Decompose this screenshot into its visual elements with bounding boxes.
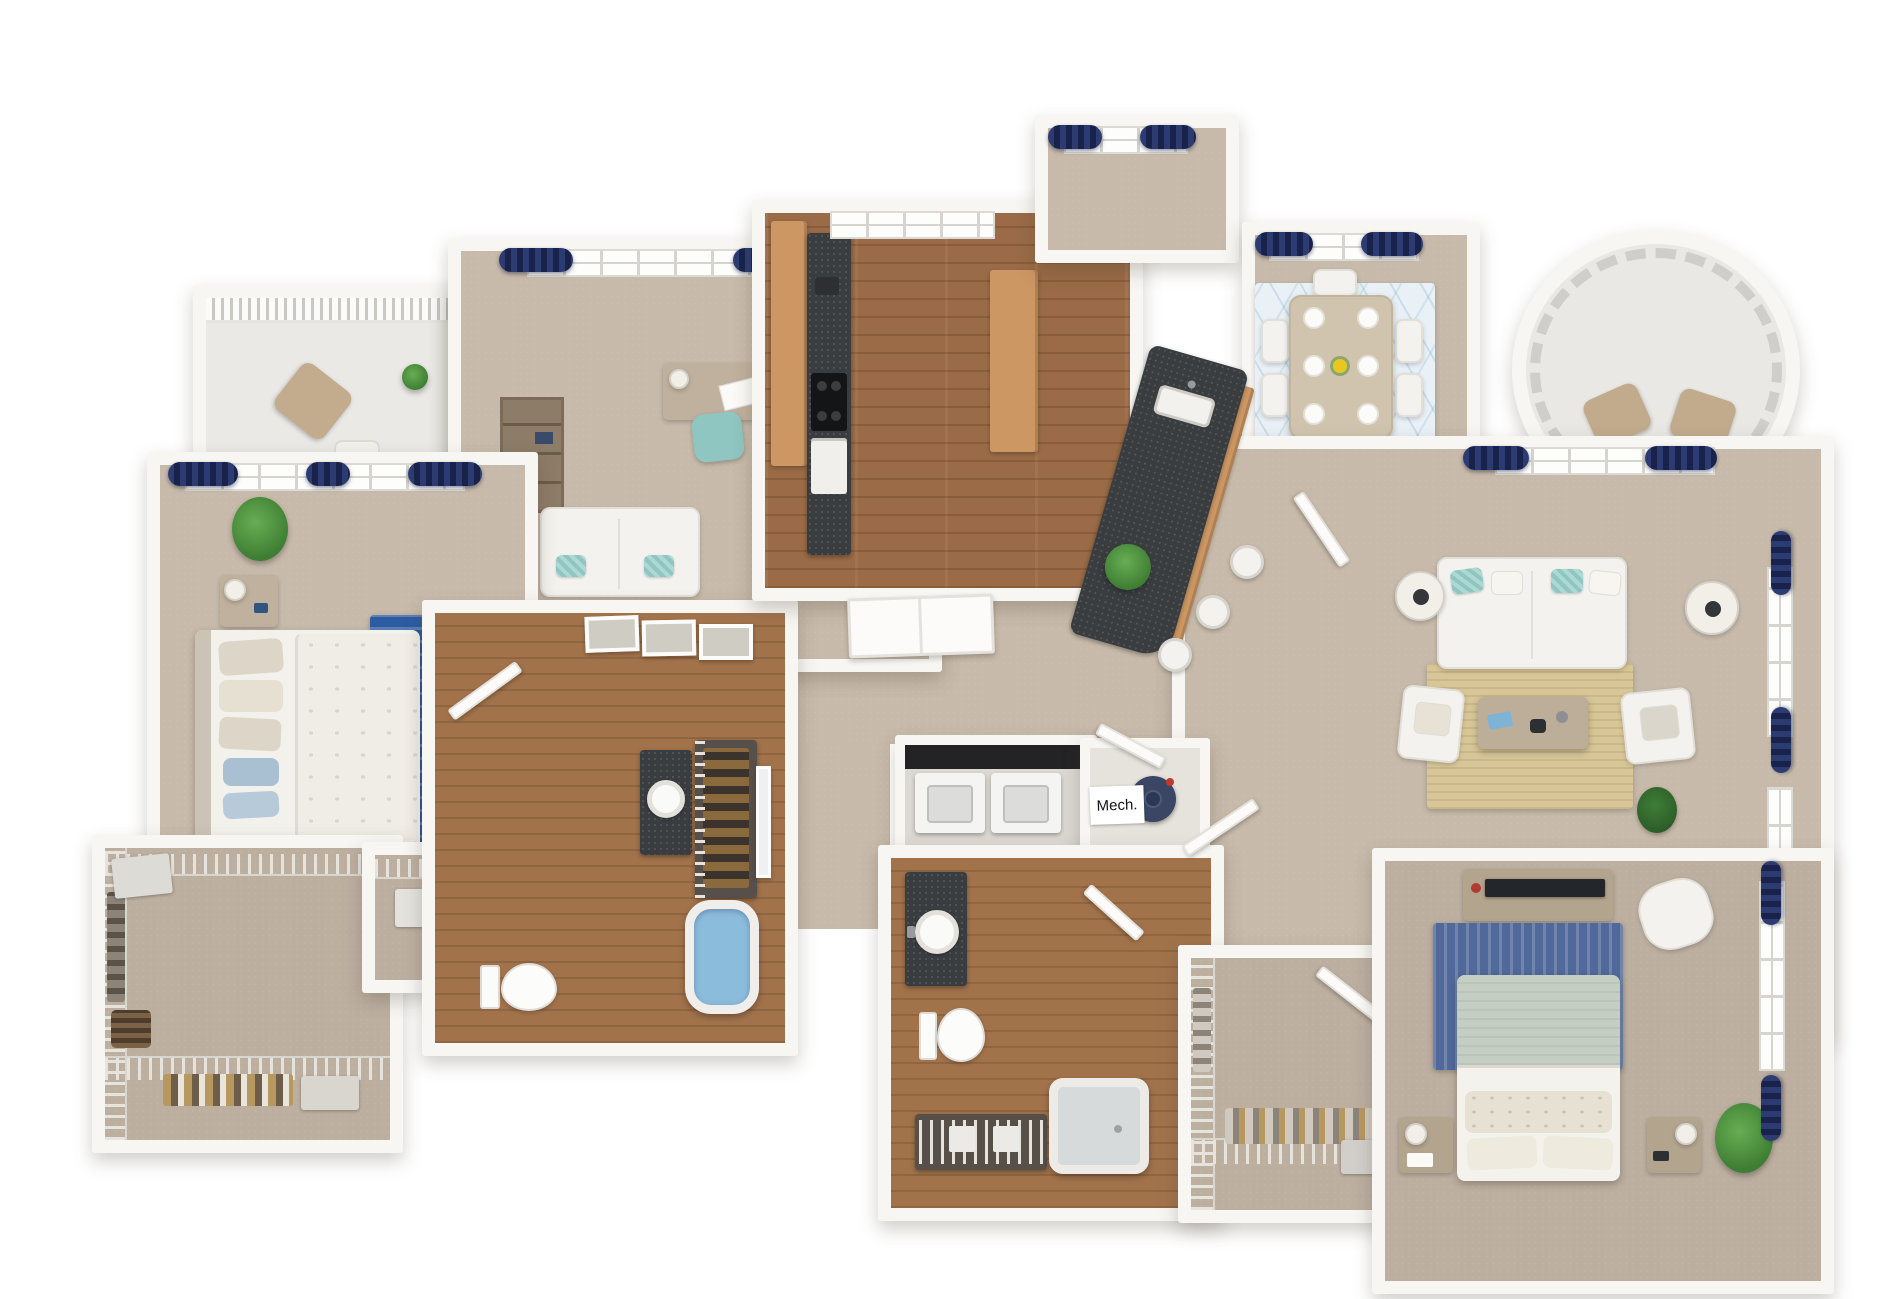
table-lamp bbox=[224, 579, 246, 601]
patio-chair bbox=[271, 359, 356, 443]
books bbox=[535, 432, 553, 444]
second-bathroom bbox=[878, 845, 1224, 1221]
curtains bbox=[499, 248, 573, 272]
valve bbox=[1166, 778, 1174, 786]
pillow bbox=[222, 791, 279, 820]
towel bbox=[1407, 1153, 1433, 1167]
phone bbox=[1653, 1151, 1669, 1161]
place-setting bbox=[1357, 307, 1379, 329]
potted-plant bbox=[1099, 538, 1156, 595]
hanging-clothes bbox=[1225, 1108, 1373, 1144]
hanging-clothes bbox=[163, 1074, 293, 1106]
picture-frame bbox=[699, 624, 753, 660]
balcony-railing bbox=[206, 298, 471, 323]
dining-chair bbox=[1313, 269, 1357, 297]
potted-plant bbox=[1637, 787, 1677, 833]
throw-pillow bbox=[556, 555, 586, 577]
coffee-table bbox=[1478, 697, 1588, 749]
vanity-sink bbox=[915, 910, 959, 954]
curtains bbox=[1048, 125, 1102, 149]
loveseat bbox=[540, 507, 700, 597]
desk-lamp bbox=[669, 369, 689, 389]
storage-box bbox=[301, 1076, 359, 1110]
toilet-tank bbox=[480, 965, 500, 1009]
dining-chair bbox=[1261, 319, 1289, 363]
storage-box bbox=[111, 853, 173, 899]
side-table-lamp bbox=[1685, 581, 1739, 635]
faucet bbox=[1187, 380, 1197, 390]
decor-item bbox=[1471, 883, 1481, 893]
curtains bbox=[1761, 1075, 1781, 1141]
place-setting bbox=[1357, 403, 1379, 425]
seat-divider bbox=[1531, 571, 1533, 659]
blanket bbox=[1457, 975, 1620, 1065]
curtains bbox=[1771, 531, 1791, 595]
picture-frame bbox=[584, 615, 639, 653]
vanity bbox=[640, 750, 692, 855]
wire-shelving bbox=[695, 740, 705, 898]
nightstand bbox=[220, 575, 278, 627]
hall-window-door bbox=[756, 766, 771, 878]
throw-pillow bbox=[1639, 704, 1680, 742]
throw-pillow bbox=[1413, 701, 1452, 737]
armchair bbox=[1631, 871, 1720, 958]
pillow bbox=[219, 680, 283, 712]
faucet bbox=[907, 926, 915, 938]
door bbox=[1083, 884, 1145, 942]
pillow bbox=[218, 716, 282, 751]
island-sink bbox=[1152, 384, 1216, 429]
toilet-tank bbox=[919, 1012, 937, 1060]
throw-pillow bbox=[644, 555, 674, 577]
curtains bbox=[408, 462, 482, 486]
refrigerator-cabinet bbox=[990, 270, 1038, 452]
sofa bbox=[1437, 557, 1627, 669]
storage-box bbox=[949, 1126, 975, 1152]
bed bbox=[1457, 975, 1620, 1181]
tv bbox=[1485, 879, 1605, 897]
picture-frame bbox=[642, 620, 697, 657]
side-table-lamp bbox=[1395, 571, 1445, 621]
door bbox=[447, 661, 523, 721]
pillow bbox=[218, 638, 284, 676]
toilet bbox=[501, 963, 557, 1011]
curtains bbox=[1255, 232, 1313, 256]
pillow bbox=[1542, 1135, 1614, 1171]
master-bedroom bbox=[1372, 848, 1834, 1294]
dining-chair bbox=[1261, 373, 1289, 417]
throw-pillow bbox=[1491, 571, 1523, 595]
curtains bbox=[1771, 707, 1791, 773]
throw-pillow bbox=[1588, 569, 1622, 596]
flower-vase bbox=[1333, 359, 1347, 373]
dryer bbox=[991, 773, 1061, 833]
shelf bbox=[905, 745, 1087, 769]
dining-nook bbox=[1035, 115, 1239, 263]
hanging-clothes bbox=[107, 892, 125, 1002]
place-setting bbox=[1303, 403, 1325, 425]
coffee-maker bbox=[815, 277, 839, 295]
seat-divider bbox=[618, 519, 620, 589]
bar-stool bbox=[1230, 545, 1264, 579]
closet-shelving bbox=[915, 1114, 1047, 1170]
soaking-tub bbox=[685, 900, 759, 1014]
potted-plant bbox=[232, 497, 288, 561]
curtains bbox=[1361, 232, 1423, 256]
nightstand bbox=[1647, 1117, 1701, 1173]
vanity bbox=[905, 872, 967, 986]
alarm-clock bbox=[254, 603, 268, 613]
tissue-box bbox=[1487, 711, 1513, 730]
pillow bbox=[1466, 1135, 1538, 1171]
storage-basket bbox=[111, 1010, 151, 1048]
dining-chair bbox=[1395, 319, 1423, 363]
wire-shelving bbox=[919, 1120, 1043, 1164]
toilet bbox=[937, 1008, 985, 1062]
place-setting bbox=[1303, 355, 1325, 377]
mech-room-label-text: Mech. bbox=[1096, 796, 1137, 814]
hanging-clothes bbox=[1193, 988, 1211, 1072]
pillow bbox=[1465, 1091, 1612, 1133]
bar-stool bbox=[1158, 638, 1192, 672]
storage-box bbox=[993, 1126, 1019, 1152]
wardrobe-closet bbox=[695, 740, 757, 898]
sheet-fold bbox=[1457, 1065, 1620, 1068]
curtains bbox=[1761, 861, 1781, 925]
shower-tub bbox=[1049, 1078, 1149, 1174]
decor-item bbox=[1530, 719, 1546, 733]
throw-pillow bbox=[1551, 569, 1583, 593]
hanging-clothes bbox=[703, 748, 749, 888]
curtains bbox=[306, 462, 350, 486]
curtains bbox=[1140, 125, 1196, 149]
decor-item bbox=[1556, 711, 1568, 723]
cooktop bbox=[811, 373, 847, 431]
place-setting bbox=[1357, 355, 1379, 377]
curtains bbox=[1645, 446, 1717, 470]
office-chair bbox=[691, 411, 746, 464]
mech-room-label: Mech. bbox=[1089, 785, 1144, 825]
potted-plant bbox=[402, 364, 428, 390]
bathroom bbox=[422, 600, 798, 1056]
kitchen-counter bbox=[807, 233, 851, 555]
floor-plan: Mech. bbox=[0, 0, 1894, 1299]
walk-in-closet bbox=[92, 835, 403, 1153]
drain bbox=[1114, 1125, 1122, 1133]
oven bbox=[811, 438, 847, 494]
window bbox=[830, 211, 995, 239]
closet-doors bbox=[847, 593, 995, 658]
washer bbox=[915, 773, 985, 833]
armchair bbox=[1619, 687, 1696, 766]
vessel-sink bbox=[647, 780, 685, 818]
dining-table bbox=[1289, 295, 1393, 439]
curtains bbox=[1463, 446, 1529, 470]
table-lamp bbox=[1675, 1123, 1697, 1145]
nightstand bbox=[1399, 1117, 1453, 1173]
pillow bbox=[223, 758, 279, 786]
table-lamp bbox=[1405, 1123, 1427, 1145]
armchair bbox=[1396, 684, 1465, 764]
throw-pillow bbox=[1449, 567, 1484, 595]
curtains bbox=[168, 462, 238, 486]
pantry-cabinet bbox=[771, 221, 807, 466]
place-setting bbox=[1303, 307, 1325, 329]
bar-stool bbox=[1196, 595, 1230, 629]
dining-chair bbox=[1395, 373, 1423, 417]
